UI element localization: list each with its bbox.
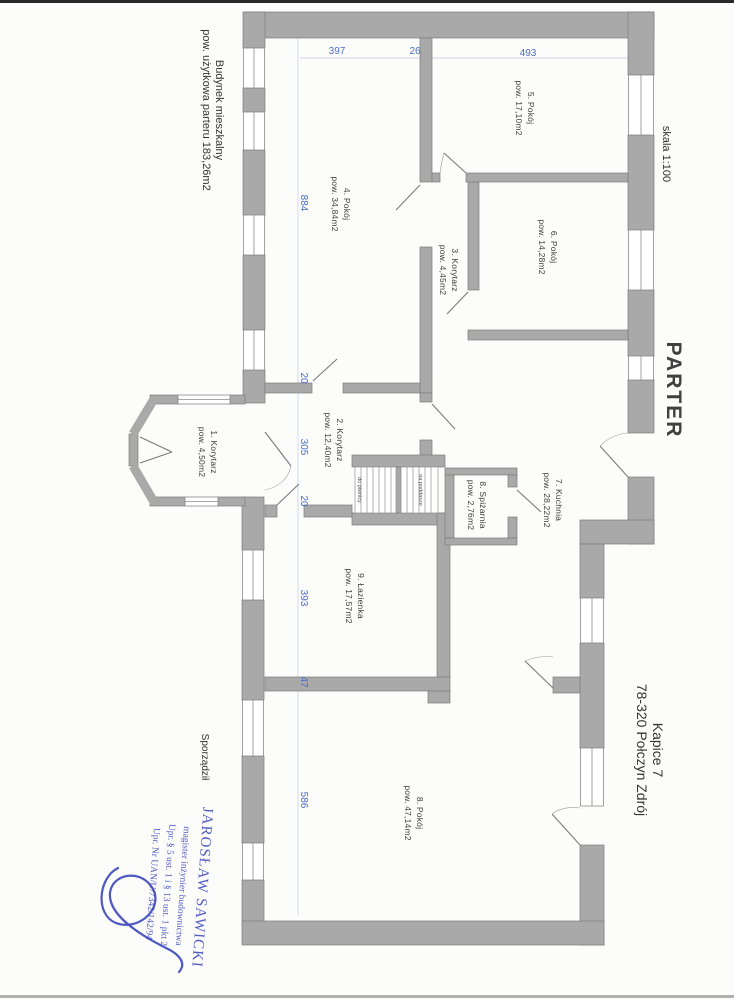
room-name: 7. Kuchnia	[554, 479, 564, 521]
room-label-1: 1. Korytarz pow. 4,50m2	[197, 427, 219, 477]
floor-text: PARTER	[662, 342, 685, 439]
dim-left-4: 20	[298, 495, 309, 507]
window	[629, 230, 654, 290]
door-opening	[517, 490, 541, 512]
dim-top-3: 493	[520, 48, 537, 59]
window	[629, 75, 654, 135]
room-label-8-pantry: 8. Spiżarnia pow. 2,76m2	[466, 480, 488, 530]
window	[629, 356, 654, 380]
room-name: 2. Korytarz	[335, 418, 345, 461]
title-line1: Budynek mieszkalny	[213, 60, 225, 161]
room-label-6: 6. Pokój pow. 14,28m2	[537, 219, 559, 274]
door-opening	[140, 437, 172, 463]
dim-left-7: 586	[298, 792, 309, 809]
window	[581, 748, 604, 806]
window	[244, 48, 265, 88]
stairs-attic-label: na poddasze	[417, 474, 423, 506]
window	[244, 330, 265, 370]
prepared-by-text: Sporządził	[199, 734, 210, 781]
room-area: pow. 4,45m2	[438, 245, 448, 295]
floor-plan-svg: do piwnicy na poddasze 5. Pokój pow. 17,…	[0, 0, 734, 1000]
room-name: 4. Pokój	[342, 188, 352, 220]
room-area: pow. 14,28m2	[537, 219, 547, 274]
room-label-3: 3. Korytarz pow. 4,45m2	[438, 245, 460, 295]
address-line1: Kapice 7	[650, 723, 666, 778]
window	[244, 112, 265, 150]
room-label-7: 7. Kuchnia pow. 28,22m2	[542, 472, 564, 527]
door-opening	[396, 185, 420, 210]
room-name: 5. Pokój	[526, 92, 536, 124]
window	[243, 700, 264, 756]
window	[243, 843, 264, 880]
room-area: pow. 28,22m2	[542, 472, 552, 527]
window	[185, 497, 218, 506]
room-label-8-room: 8. Pokój pow. 47,14m2	[403, 785, 425, 840]
door-opening	[552, 808, 580, 845]
room-label-2: 2. Korytarz pow. 12,40m2	[323, 412, 345, 467]
door-opening	[447, 292, 468, 314]
dim-left-3: 305	[298, 439, 309, 456]
stairs-basement-label: do piwnicy	[356, 477, 362, 503]
dim-top-2: 26	[409, 46, 421, 57]
room-name: 9. Łazienka	[356, 573, 366, 619]
dim-left-6: 47	[298, 676, 309, 688]
dim-left-1: 884	[298, 195, 309, 212]
door-opening	[432, 404, 455, 429]
window	[243, 550, 264, 600]
scan-edge-top	[0, 0, 734, 3]
prepared-by-label: Sporządził	[199, 734, 210, 781]
room-area: pow. 17,10m2	[514, 80, 524, 135]
room-area: pow. 17,57m2	[344, 568, 354, 623]
stamp-license2: Upr. Nr UAN/U/7342/142/94	[143, 828, 161, 941]
room-area: pow. 12,40m2	[323, 412, 333, 467]
dim-left-2: 20	[298, 372, 309, 384]
window	[244, 215, 265, 255]
dim-left-5: 393	[298, 590, 309, 607]
scale-text: skala 1:100	[660, 126, 672, 182]
window	[178, 395, 230, 404]
address-line2: 78-320 Połczyn Zdrój	[634, 684, 650, 816]
address-block: Kapice 7 78-320 Połczyn Zdrój	[634, 684, 666, 816]
room-name: 3. Korytarz	[450, 248, 460, 291]
room-area: pow. 2,76m2	[466, 480, 476, 530]
stamp-name: JAROSŁAW SAWICKI	[188, 806, 215, 968]
room-name: 1. Korytarz	[209, 430, 219, 473]
room-area: pow. 34,84m2	[330, 176, 340, 231]
door-opening	[313, 359, 337, 381]
floor-label: PARTER	[662, 342, 685, 439]
room-name: 8. Spiżarnia	[478, 481, 488, 528]
drawing-title: Budynek mieszkalny pow. użytkowa parteru…	[200, 29, 225, 190]
room-label-5: 5. Pokój pow. 17,10m2	[514, 80, 536, 135]
door-opening	[440, 153, 466, 173]
room-label-4: 4. Pokój pow. 34,84m2	[330, 176, 352, 231]
scan-edge-bottom	[0, 995, 734, 998]
scanned-floor-plan-page: do piwnicy na poddasze 5. Pokój pow. 17,…	[0, 0, 734, 1000]
room-label-9: 9. Łazienka pow. 17,57m2	[344, 568, 366, 623]
door-opening	[265, 432, 291, 490]
door-opening	[525, 657, 553, 689]
window	[581, 598, 604, 643]
door-opening	[277, 484, 299, 505]
dim-top-1: 397	[329, 46, 346, 57]
door-opening	[600, 433, 628, 477]
room-area: pow. 4,50m2	[197, 427, 207, 477]
title-line2: pow. użytkowa parteru 183,26m2	[200, 29, 212, 190]
engineer-stamp: JAROSŁAW SAWICKI magister inżynier budow…	[141, 803, 215, 968]
room-area: pow. 47,14m2	[403, 785, 413, 840]
scale-label: skala 1:100	[660, 126, 672, 182]
room-name: 6. Pokój	[549, 231, 559, 263]
room-name: 8. Pokój	[415, 797, 425, 829]
